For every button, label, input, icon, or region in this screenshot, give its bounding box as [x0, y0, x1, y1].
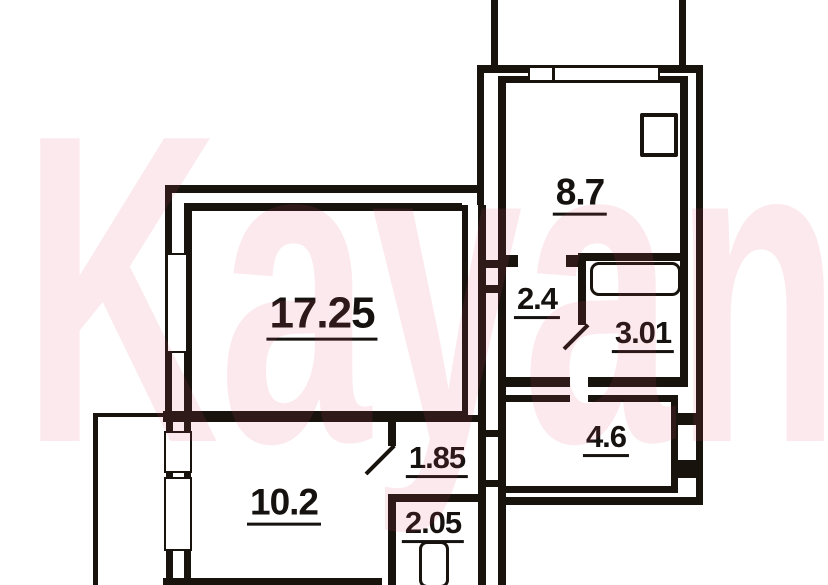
wall [491, 0, 498, 72]
wall [165, 185, 484, 193]
wall [500, 395, 570, 402]
wall [498, 83, 506, 585]
wall [498, 497, 703, 505]
bedroom-balcony-window-upper [164, 431, 192, 473]
wall [462, 205, 468, 422]
living-room-window [166, 253, 188, 353]
room-label-hall: 2.4 [514, 283, 560, 319]
bedroom-balcony-window-lower [164, 477, 192, 551]
wall [679, 0, 686, 66]
wall-stub [486, 260, 498, 268]
wall-stub [486, 285, 498, 293]
wall [388, 494, 396, 585]
floor-plan: 17.25 8.7 2.4 3.01 4.6 1.85 10.2 2.05 Ka… [0, 0, 828, 585]
wall [192, 203, 462, 211]
wall [477, 65, 484, 205]
wall-stub [486, 430, 498, 437]
window-mullion [552, 66, 555, 82]
wall [578, 261, 586, 325]
kitchen-window [528, 66, 660, 82]
room-label-living-room: 17.25 [266, 291, 377, 341]
watermark-text: Kayan [22, 92, 828, 488]
room-label-bedroom: 10.2 [247, 484, 321, 526]
wall [388, 494, 486, 502]
vent-shaft-icon [640, 113, 678, 157]
wall [500, 486, 678, 493]
room-label-closet: 1.85 [406, 442, 468, 478]
bedroom-door-swing [365, 444, 396, 475]
bathroom-door-swing [563, 324, 590, 351]
room-label-kitchen: 8.7 [553, 174, 607, 216]
room-label-bathroom: 3.01 [612, 317, 674, 353]
wall [388, 422, 396, 446]
toilet-icon [419, 541, 449, 585]
bathtub-icon [590, 262, 681, 296]
wall [588, 395, 678, 402]
wall-stub [678, 413, 696, 425]
wall [506, 377, 570, 387]
wall [680, 76, 688, 377]
balcony-wall [93, 413, 168, 417]
wall-stub [678, 460, 696, 478]
room-label-corridor: 4.6 [583, 421, 629, 457]
wall [696, 65, 703, 505]
room-label-wc: 2.05 [402, 507, 464, 543]
wall [578, 253, 688, 261]
balcony-wall [93, 413, 98, 585]
wall [671, 395, 678, 493]
wall [388, 415, 486, 422]
wall [506, 255, 518, 267]
wall-stub [486, 480, 498, 487]
wall [588, 377, 688, 387]
wall [163, 578, 382, 585]
wall [478, 205, 486, 585]
